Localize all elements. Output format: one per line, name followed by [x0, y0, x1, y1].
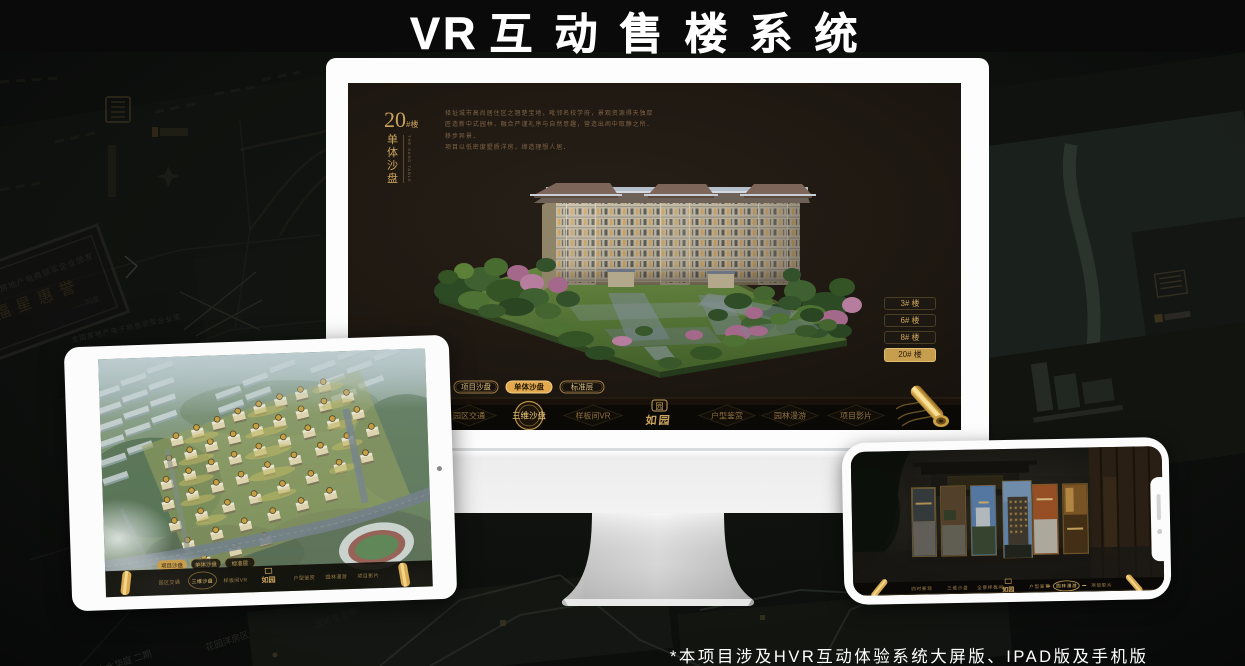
- svg-text:样板间VR: 样板间VR: [575, 411, 610, 421]
- svg-text:标准层: 标准层: [571, 382, 594, 392]
- svg-text:三维沙盘: 三维沙盘: [191, 578, 213, 586]
- svg-text:三维沙盘: 三维沙盘: [512, 411, 547, 421]
- svg-text:如园: 如园: [645, 413, 672, 427]
- svg-text:如园: 如园: [261, 575, 275, 584]
- svg-text:项目影片: 项目影片: [357, 572, 379, 580]
- svg-text:园区交通: 园区交通: [158, 579, 180, 587]
- svg-text:项目沙盘: 项目沙盘: [461, 382, 491, 392]
- svg-text:项目影片: 项目影片: [840, 411, 872, 421]
- svg-text:园区交通: 园区交通: [453, 411, 485, 421]
- svg-text:如园: 如园: [1002, 585, 1014, 593]
- svg-text:园: 园: [656, 402, 664, 411]
- svg-text:样板间VR: 样板间VR: [223, 576, 247, 584]
- svg-text:园林漫游: 园林漫游: [774, 411, 806, 421]
- svg-text:园林漫游: 园林漫游: [325, 573, 347, 581]
- svg-text:单体沙盘: 单体沙盘: [514, 382, 544, 392]
- svg-text:户型鉴赏: 户型鉴赏: [711, 411, 743, 421]
- svg-text:户型鉴赏: 户型鉴赏: [293, 574, 315, 582]
